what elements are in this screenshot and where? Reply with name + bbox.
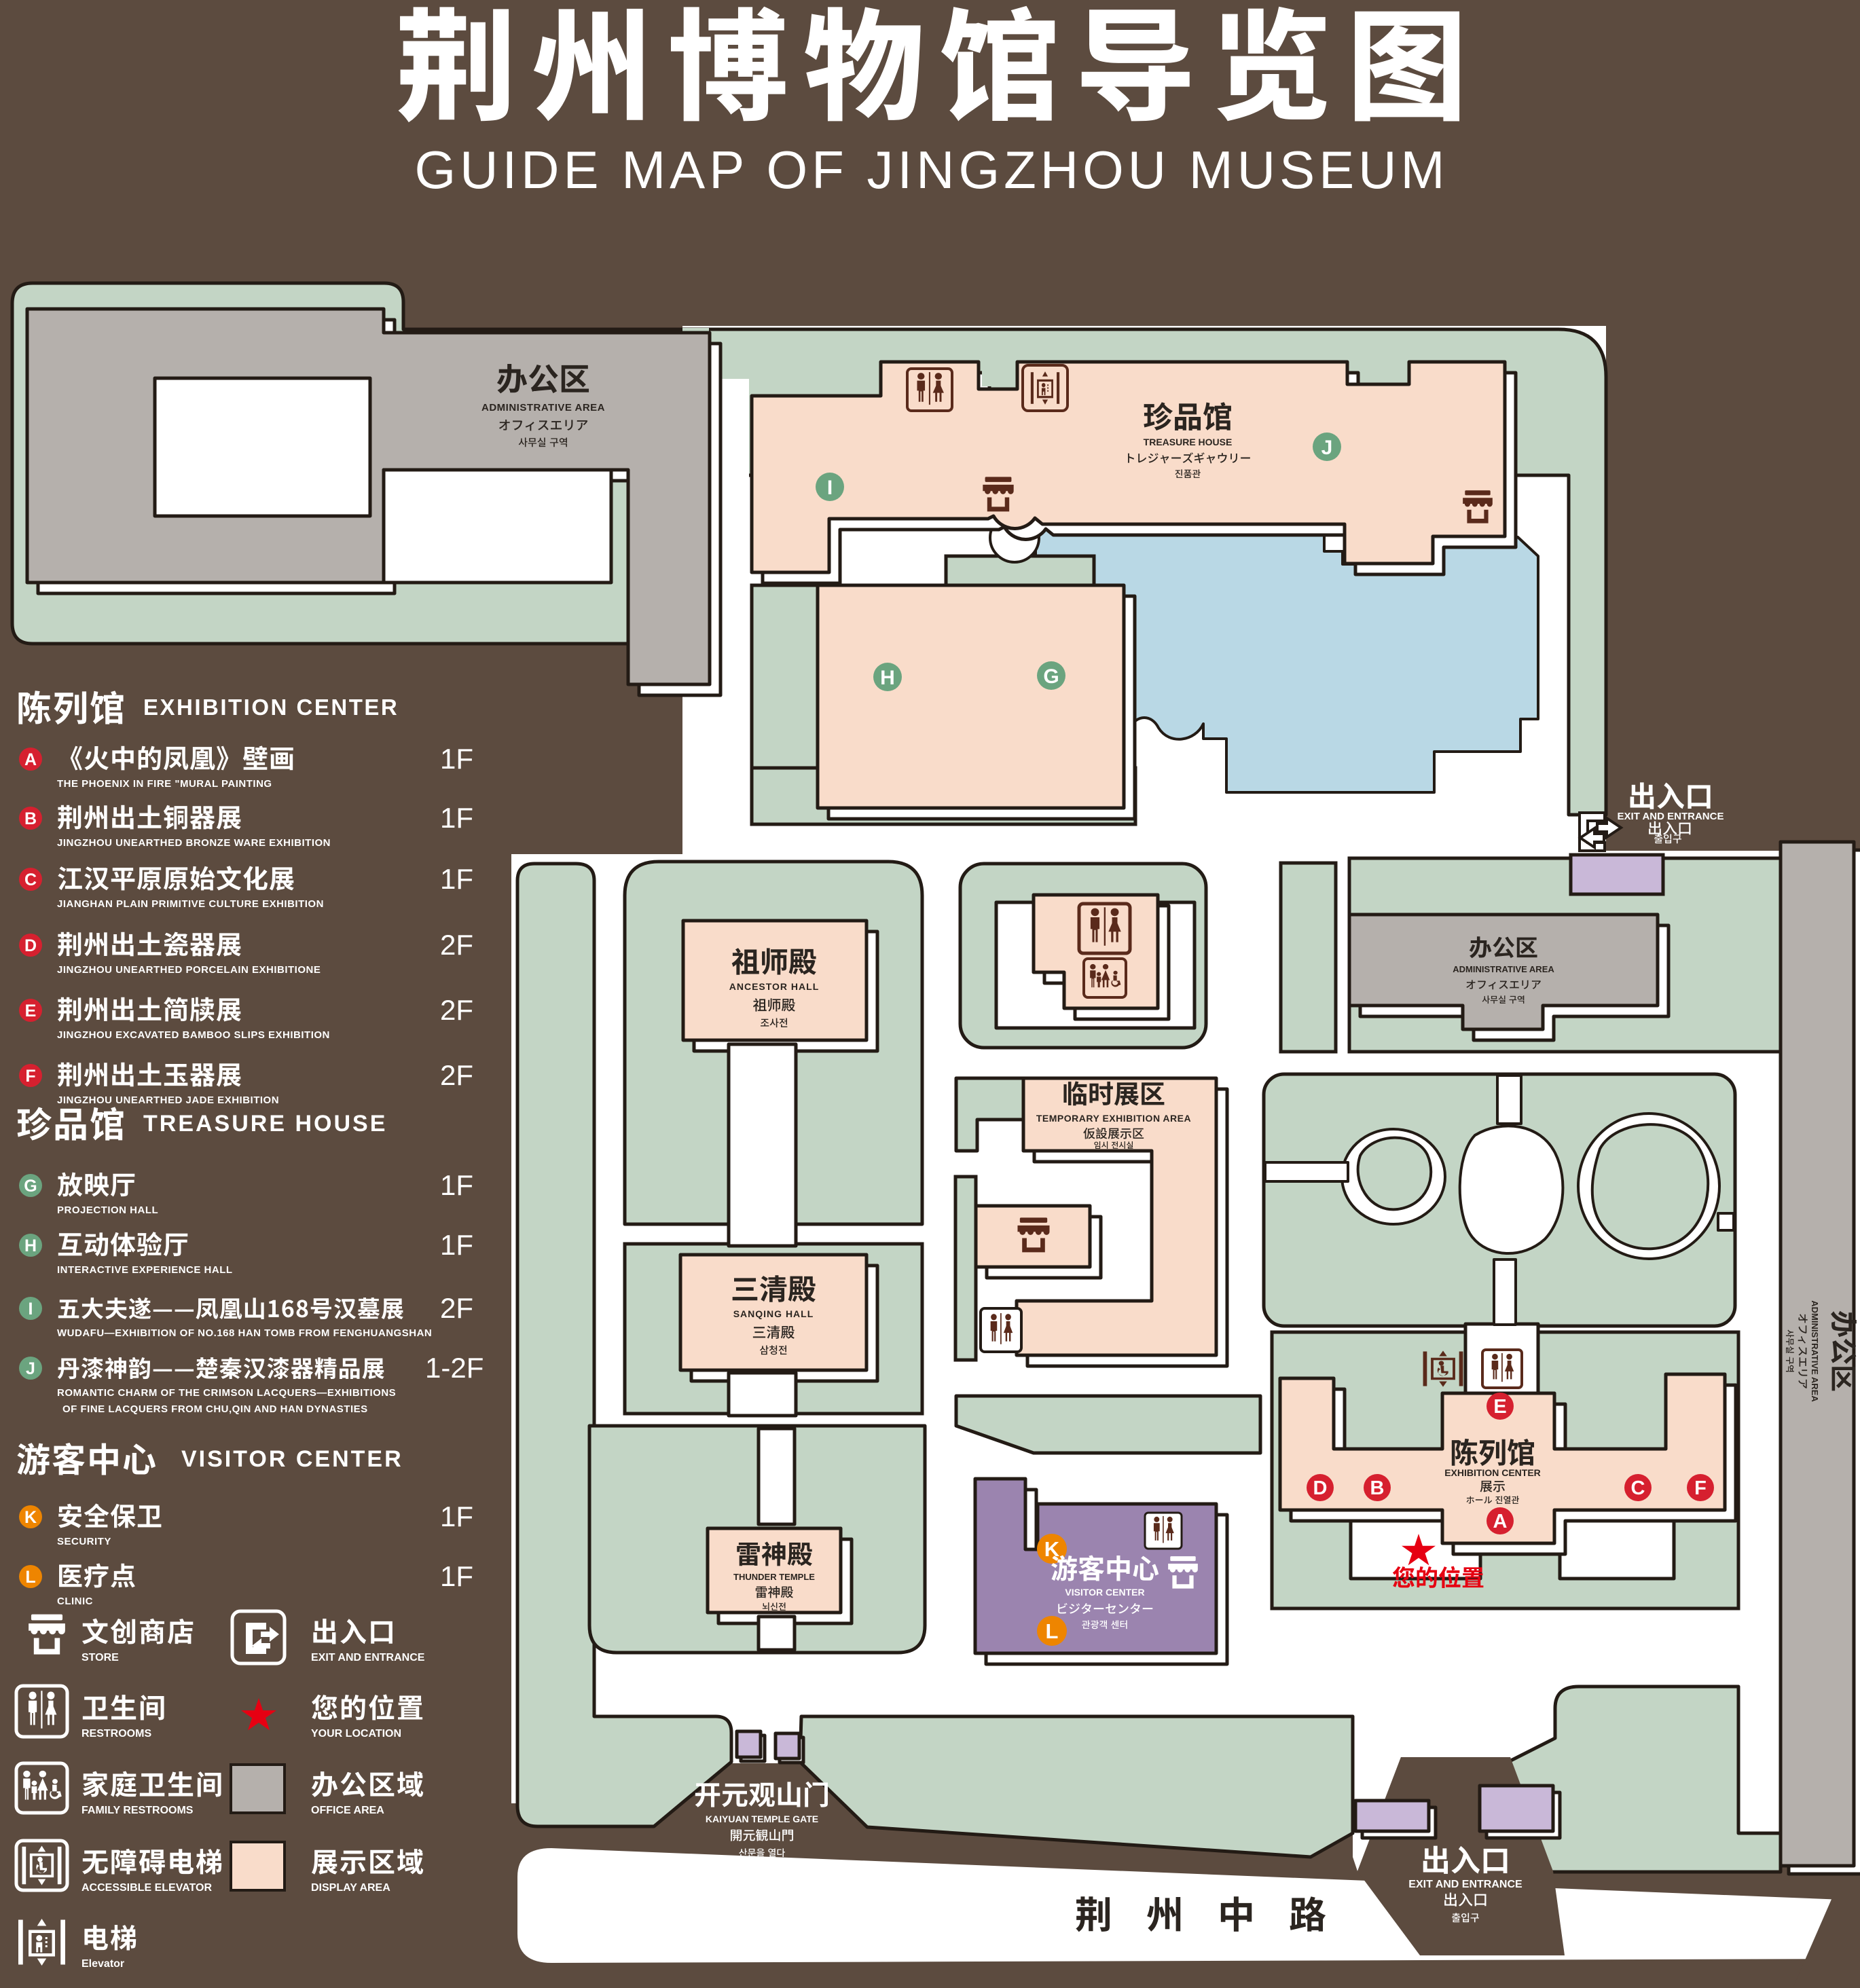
svg-text:ADMINISTRATIVE AREA: ADMINISTRATIVE AREA (481, 402, 605, 413)
svg-text:A: A (1493, 1511, 1508, 1532)
svg-text:VISITOR CENTER: VISITOR CENTER (181, 1446, 403, 1472)
svg-text:TREASURE HOUSE: TREASURE HOUSE (1144, 437, 1233, 447)
svg-text:RESTROOMS: RESTROOMS (81, 1728, 151, 1739)
svg-text:ADMINISTRATIVE AREA: ADMINISTRATIVE AREA (1453, 964, 1554, 974)
svg-text:1F: 1F (440, 802, 473, 834)
svg-text:STORE: STORE (81, 1652, 119, 1663)
svg-text:Elevator: Elevator (81, 1958, 124, 1970)
svg-text:DISPLAY AREA: DISPLAY AREA (311, 1882, 390, 1894)
svg-text:H: H (880, 667, 895, 689)
svg-text:FAMILY RESTROOMS: FAMILY RESTROOMS (81, 1805, 194, 1816)
svg-text:WUDAFU—EXHIBITION OF NO.168 HA: WUDAFU—EXHIBITION OF NO.168 HAN TOMB FRO… (57, 1327, 432, 1339)
svg-text:G: G (1043, 665, 1059, 688)
svg-text:TREASURE HOUSE: TREASURE HOUSE (143, 1111, 387, 1137)
svg-text:C: C (24, 870, 37, 889)
svg-text:J: J (26, 1359, 35, 1378)
svg-text:EXIT AND ENTRANCE: EXIT AND ENTRANCE (1618, 811, 1724, 822)
svg-text:1F: 1F (440, 863, 473, 895)
svg-text:I: I (827, 477, 833, 499)
svg-text:ANCESTOR HALL: ANCESTOR HALL (729, 981, 820, 992)
svg-text:B: B (1370, 1477, 1385, 1499)
svg-text:JINGZHOU UNEARTHED BRONZE WARE: JINGZHOU UNEARTHED BRONZE WARE EXHIBITIO… (57, 837, 331, 849)
svg-text:THE PHOENIX IN FIRE "MURAL PAI: THE PHOENIX IN FIRE "MURAL PAINTING (57, 778, 272, 790)
svg-text:1F: 1F (440, 743, 473, 775)
svg-text:I: I (29, 1300, 33, 1319)
svg-text:JINGZHOU EXCAVATED BAMBOO SLIP: JINGZHOU EXCAVATED BAMBOO SLIPS EXHIBITI… (57, 1029, 330, 1041)
svg-text:2F: 2F (440, 994, 473, 1026)
svg-text:E: E (25, 1001, 37, 1020)
svg-text:B: B (24, 809, 37, 828)
svg-text:JINGZHOU UNEARTHED JADE EXHIBI: JINGZHOU UNEARTHED JADE EXHIBITION (57, 1094, 279, 1106)
svg-text:F: F (1694, 1477, 1707, 1499)
svg-text:TEMPORARY EXHIBITION AREA: TEMPORARY EXHIBITION AREA (1036, 1113, 1191, 1124)
svg-text:VISITOR CENTER: VISITOR CENTER (1065, 1587, 1144, 1598)
svg-text:C: C (1631, 1477, 1645, 1499)
svg-text:OFFICE AREA: OFFICE AREA (311, 1805, 384, 1816)
svg-text:EXHIBITION CENTER: EXHIBITION CENTER (143, 695, 399, 720)
svg-text:J: J (1321, 437, 1333, 459)
svg-text:A: A (24, 750, 37, 769)
svg-text:OF FINE LACQUERS FROM CHU,QIN: OF FINE LACQUERS FROM CHU,QIN AND HAN DY… (62, 1403, 368, 1415)
svg-text:K: K (1044, 1537, 1060, 1561)
svg-text:JIANGHAN PLAIN PRIMITIVE CULTU: JIANGHAN PLAIN PRIMITIVE CULTURE EXHIBIT… (57, 898, 324, 910)
svg-text:ROMANTIC CHARM OF THE CRIMSON: ROMANTIC CHARM OF THE CRIMSON LACQUERS—E… (57, 1387, 396, 1399)
svg-text:1F: 1F (440, 1501, 473, 1532)
svg-text:SANQING HALL: SANQING HALL (733, 1308, 814, 1319)
svg-text:2F: 2F (440, 1059, 473, 1091)
svg-text:D: D (24, 936, 37, 955)
svg-text:ADMINISTRATIVE AREA: ADMINISTRATIVE AREA (1810, 1300, 1820, 1402)
svg-text:L: L (25, 1568, 35, 1587)
svg-text:EXHIBITION CENTER: EXHIBITION CENTER (1444, 1467, 1541, 1478)
svg-text:1F: 1F (440, 1229, 473, 1261)
svg-text:2F: 2F (440, 929, 473, 961)
svg-text:EXIT AND ENTRANCE: EXIT AND ENTRANCE (1408, 1879, 1522, 1890)
svg-text:GUIDE MAP OF JINGZHOU MUSEUM: GUIDE MAP OF JINGZHOU MUSEUM (415, 140, 1449, 200)
svg-text:YOUR LOCATION: YOUR LOCATION (311, 1728, 401, 1739)
svg-text:PROJECTION HALL: PROJECTION HALL (57, 1204, 158, 1216)
svg-text:D: D (1313, 1477, 1328, 1499)
svg-text:JINGZHOU UNEARTHED PORCELAIN E: JINGZHOU UNEARTHED PORCELAIN EXHIBITIONE (57, 964, 321, 976)
svg-text:G: G (24, 1177, 37, 1196)
svg-text:ACCESSIBLE ELEVATOR: ACCESSIBLE ELEVATOR (81, 1882, 212, 1894)
svg-text:KAIYUAN TEMPLE GATE: KAIYUAN TEMPLE GATE (706, 1814, 818, 1824)
svg-text:K: K (24, 1508, 37, 1527)
svg-text:H: H (24, 1236, 37, 1255)
svg-text:1F: 1F (440, 1169, 473, 1201)
svg-text:L: L (1046, 1619, 1059, 1643)
svg-text:2F: 2F (440, 1292, 473, 1324)
svg-text:F: F (25, 1067, 35, 1086)
svg-text:EXIT AND ENTRANCE: EXIT AND ENTRANCE (311, 1652, 425, 1663)
svg-text:INTERACTIVE EXPERIENCE HALL: INTERACTIVE EXPERIENCE HALL (57, 1264, 233, 1276)
svg-text:E: E (1493, 1396, 1506, 1418)
svg-text:1-2F: 1-2F (425, 1352, 484, 1384)
svg-text:CLINIC: CLINIC (57, 1596, 93, 1607)
svg-text:THUNDER TEMPLE: THUNDER TEMPLE (733, 1572, 815, 1582)
svg-text:SECURITY: SECURITY (57, 1536, 111, 1547)
svg-text:1F: 1F (440, 1560, 473, 1592)
